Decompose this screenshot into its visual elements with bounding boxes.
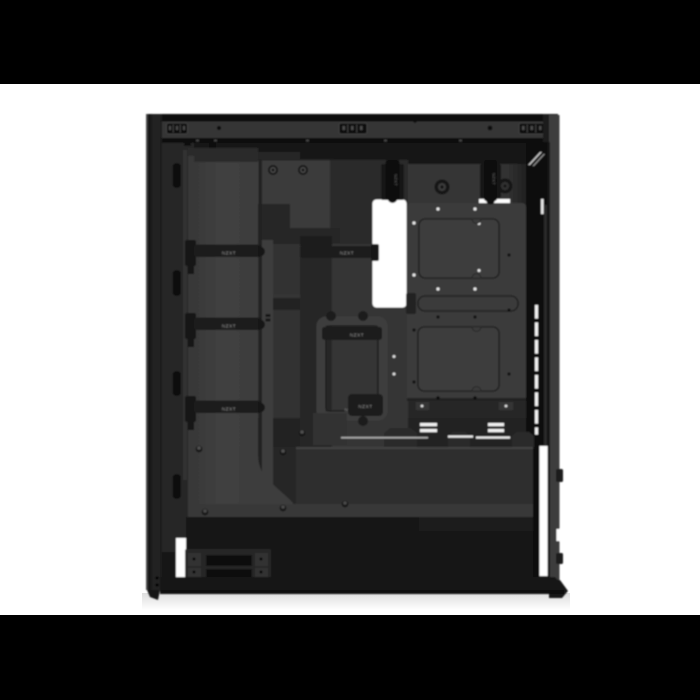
svg-text:NZXT: NZXT bbox=[492, 173, 497, 185]
svg-text:NZXT: NZXT bbox=[394, 174, 399, 186]
svg-text:NZXT: NZXT bbox=[350, 333, 364, 338]
svg-text:NZXT: NZXT bbox=[340, 251, 354, 256]
svg-text:NZXT: NZXT bbox=[222, 324, 236, 329]
svg-text:NZXT: NZXT bbox=[358, 404, 372, 409]
svg-text:NZXT: NZXT bbox=[222, 251, 236, 256]
svg-text:NZXT: NZXT bbox=[222, 407, 236, 412]
